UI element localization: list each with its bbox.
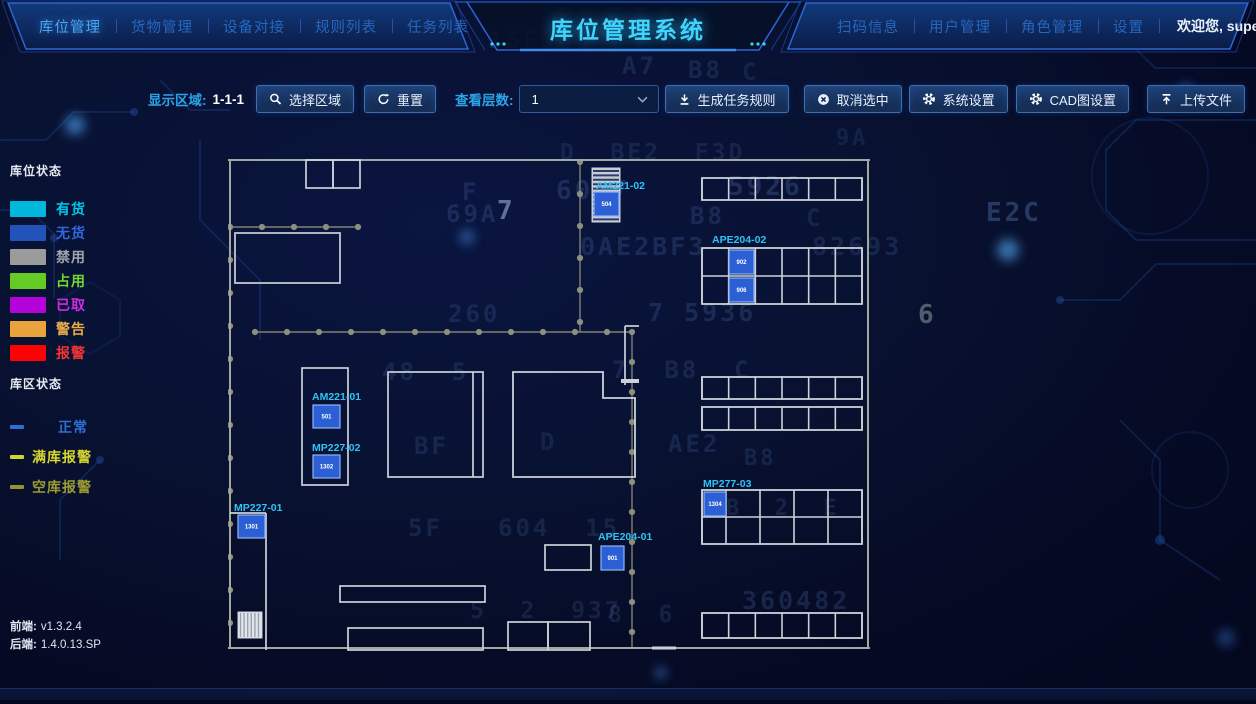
- floor-structure: [340, 586, 485, 602]
- legend-label: 正常: [58, 417, 88, 437]
- column-dot: [629, 479, 635, 485]
- refresh-icon: [377, 93, 390, 106]
- legend-slot-item-6: 报警: [10, 345, 140, 361]
- system-settings-label: 系统设置: [943, 90, 995, 109]
- legend-label: 占用: [56, 271, 86, 291]
- frontend-version-label: 前端:: [10, 621, 37, 633]
- column-dot: [629, 359, 635, 365]
- column-dot: [291, 224, 297, 230]
- reset-button[interactable]: 重置: [364, 85, 436, 113]
- floor-structure: [545, 545, 591, 570]
- page-title: 库位管理系统: [460, 11, 796, 45]
- column-dot: [444, 329, 450, 335]
- generate-task-rule-button[interactable]: 生成任务规则: [665, 85, 789, 113]
- column-dot: [629, 329, 635, 335]
- slot-cell-1301[interactable]: 1301: [238, 515, 265, 538]
- top-bar: 库位管理货物管理设备对接规则列表任务列表 库位管理系统 扫码信息用户管理角色管理…: [0, 0, 1256, 56]
- rack-grid-2[interactable]: [702, 377, 862, 399]
- cad-settings-button[interactable]: CAD图设置: [1016, 85, 1129, 113]
- display-area-label: 显示区域:: [148, 89, 207, 109]
- background-glyph: C: [742, 58, 759, 86]
- glow-dot: [654, 666, 668, 680]
- reset-label: 重置: [397, 90, 423, 109]
- svg-text:504: 504: [601, 202, 612, 208]
- column-dot: [508, 329, 514, 335]
- nav-right-item-2[interactable]: 角色管理: [1006, 16, 1098, 37]
- svg-text:501: 501: [321, 415, 332, 421]
- slot-cell-906[interactable]: 906: [729, 278, 754, 302]
- slot-cell-501[interactable]: 501: [313, 405, 340, 428]
- legend-label: 空库报警: [32, 477, 92, 497]
- svg-text:1301: 1301: [245, 525, 259, 531]
- area-label: AM221-01: [312, 391, 361, 403]
- upload-file-button[interactable]: 上传文件: [1147, 85, 1245, 113]
- legend-label: 无货: [56, 223, 86, 243]
- legend-label: 已取: [56, 295, 86, 315]
- main-nav-right: 扫码信息用户管理角色管理设置: [822, 0, 1159, 52]
- rack-grid-1[interactable]: [702, 248, 862, 304]
- slot-cell-504[interactable]: 504: [594, 192, 619, 216]
- glow-dot: [995, 237, 1021, 263]
- rack-grid-3[interactable]: [702, 407, 862, 430]
- legend-label: 禁用: [56, 247, 86, 267]
- floor-structure: [508, 622, 548, 650]
- backend-version-label: 后端:: [10, 639, 37, 651]
- frontend-version: 前端:v1.3.2.4: [10, 618, 101, 636]
- column-dot: [577, 255, 583, 261]
- column-dot: [629, 389, 635, 395]
- system-settings-button[interactable]: 系统设置: [909, 85, 1008, 113]
- floor-structure: [388, 372, 483, 477]
- column-dot: [540, 329, 546, 335]
- slot-status-title: 库位状态: [10, 162, 140, 179]
- toolbar: 显示区域: 1-1-1 选择区域 重置 查看层数: 1: [148, 85, 1245, 113]
- download-icon: [678, 93, 691, 106]
- legend-slot-item-2: 禁用: [10, 249, 140, 265]
- gear-icon: [1029, 92, 1043, 106]
- generate-task-rule-label: 生成任务规则: [698, 90, 776, 109]
- slot-status-legend: 有货无货禁用占用已取警告报警: [10, 201, 140, 361]
- area-label: AM221-02: [596, 180, 645, 192]
- user-menu[interactable]: 欢迎您, super ▼: [1159, 16, 1256, 36]
- column-dot: [629, 569, 635, 575]
- column-dot: [577, 223, 583, 229]
- floor-structure: [333, 160, 360, 188]
- column-dot: [323, 224, 329, 230]
- legend-color-swatch: [10, 297, 46, 313]
- cancel-selection-button[interactable]: 取消选中: [804, 85, 902, 113]
- cad-floor-plan-container[interactable]: 504902906501130213019011304AM221-02APE20…: [228, 156, 872, 654]
- area-label: APE204-02: [712, 234, 766, 246]
- svg-text:906: 906: [736, 288, 747, 294]
- zone-status-legend: 正常满库报警空库报警: [10, 418, 140, 496]
- column-dot: [355, 224, 361, 230]
- upload-icon: [1160, 93, 1173, 106]
- area-label: MP227-01: [234, 502, 283, 514]
- svg-text:1304: 1304: [708, 502, 722, 508]
- nav-left-item-0[interactable]: 库位管理: [24, 16, 116, 37]
- legend-panel: 库位状态 有货无货禁用占用已取警告报警 库区状态 正常满库报警空库报警: [10, 162, 140, 508]
- legend-label: 满库报警: [32, 447, 92, 467]
- floor-structure: [348, 628, 483, 650]
- svg-text:902: 902: [736, 260, 747, 266]
- main-nav-right-panel: 扫码信息用户管理角色管理设置 欢迎您, super ▼: [806, 0, 1256, 52]
- cancel-selection-label: 取消选中: [837, 90, 889, 109]
- slot-cell-901[interactable]: 901: [601, 546, 624, 570]
- layers-label: 查看层数:: [455, 89, 514, 109]
- main-nav-left: 库位管理货物管理设备对接规则列表任务列表: [24, 0, 484, 52]
- legend-zone-item-2: 空库报警: [10, 478, 140, 496]
- select-area-button[interactable]: 选择区域: [256, 85, 354, 113]
- nav-right-item-3[interactable]: 设置: [1098, 16, 1159, 37]
- legend-label: 有货: [56, 199, 86, 219]
- floor-structure: [513, 372, 635, 477]
- version-info: 前端:v1.3.2.4 后端:1.4.0.13.SP: [10, 618, 101, 654]
- column-dot: [577, 191, 583, 197]
- app-root: 15F3604A7B8C9AD BE2 F3DF6047592669A7B8CE…: [0, 0, 1256, 699]
- background-glyph: 9A: [836, 126, 869, 151]
- column-dot: [577, 287, 583, 293]
- column-dot: [604, 329, 610, 335]
- floor-structure: [548, 622, 590, 650]
- column-dot: [380, 329, 386, 335]
- legend-slot-item-5: 警告: [10, 321, 140, 337]
- backend-version: 后端:1.4.0.13.SP: [10, 636, 101, 654]
- nav-right-item-0[interactable]: 扫码信息: [822, 16, 914, 37]
- legend-color-swatch: [10, 225, 46, 241]
- background-glyph: B8: [688, 56, 723, 84]
- legend-slot-item-3: 占用: [10, 273, 140, 289]
- nav-right-item-1[interactable]: 用户管理: [914, 16, 1006, 37]
- chevron-down-icon: [637, 96, 648, 103]
- select-area-label: 选择区域: [289, 90, 341, 109]
- legend-color-swatch: [10, 321, 46, 337]
- frontend-version-value: v1.3.2.4: [41, 621, 82, 633]
- legend-slot-item-0: 有货: [10, 201, 140, 217]
- nav-left-item-1[interactable]: 货物管理: [116, 16, 208, 37]
- column-dot: [348, 329, 354, 335]
- floor-structure: [306, 160, 333, 188]
- legend-line-swatch: [10, 455, 24, 459]
- legend-label: 警告: [56, 319, 86, 339]
- slot-cell-1304[interactable]: 1304: [704, 492, 726, 516]
- gear-icon: [922, 92, 936, 106]
- layers-value: 1: [532, 92, 539, 107]
- slot-cell-902[interactable]: 902: [729, 250, 754, 274]
- svg-text:1302: 1302: [320, 465, 334, 471]
- display-area-value: 1-1-1: [213, 92, 245, 107]
- nav-left-item-2[interactable]: 设备对接: [208, 16, 300, 37]
- column-dot: [629, 629, 635, 635]
- glow-dot: [1216, 628, 1236, 648]
- glow-dot: [63, 113, 87, 137]
- cad-floor-plan: 504902906501130213019011304AM221-02APE20…: [228, 156, 872, 654]
- area-label: MP227-02: [312, 442, 361, 454]
- rack-grid-5[interactable]: [702, 613, 862, 638]
- legend-color-swatch: [10, 273, 46, 289]
- search-icon: [269, 92, 282, 106]
- legend-zone-item-1: 满库报警: [10, 448, 140, 466]
- background-glyph: 6: [918, 300, 937, 330]
- column-dot: [572, 329, 578, 335]
- column-dot: [284, 329, 290, 335]
- legend-color-swatch: [10, 201, 46, 217]
- upload-file-label: 上传文件: [1180, 90, 1232, 109]
- column-dot: [252, 329, 258, 335]
- cancel-circle-icon: [817, 93, 830, 106]
- column-dot: [629, 599, 635, 605]
- floor-structure: [235, 233, 340, 283]
- user-welcome-label: 欢迎您, super: [1177, 16, 1256, 36]
- background-glyph: E2C: [986, 198, 1042, 228]
- svg-text:901: 901: [607, 556, 618, 562]
- legend-color-swatch: [10, 249, 46, 265]
- slot-cell-1302[interactable]: 1302: [313, 455, 340, 478]
- legend-label: 报警: [56, 343, 86, 363]
- layers-select[interactable]: 1: [519, 85, 659, 113]
- column-dot: [259, 224, 265, 230]
- legend-zone-item-0: 正常: [10, 418, 140, 436]
- column-dot: [412, 329, 418, 335]
- legend-slot-item-4: 已取: [10, 297, 140, 313]
- column-dot: [629, 509, 635, 515]
- nav-left-item-3[interactable]: 规则列表: [300, 16, 392, 37]
- backend-version-value: 1.4.0.13.SP: [41, 639, 101, 651]
- rack-grid-0[interactable]: [702, 178, 862, 200]
- legend-color-swatch: [10, 345, 46, 361]
- footer-strip: [0, 688, 1256, 700]
- column-dot: [476, 329, 482, 335]
- column-dot: [577, 319, 583, 325]
- legend-line-swatch: [10, 485, 24, 489]
- background-glyph: A7: [622, 52, 657, 80]
- area-label: APE204-01: [598, 531, 652, 543]
- zone-status-title: 库区状态: [10, 375, 140, 392]
- column-dot: [316, 329, 322, 335]
- cad-settings-label: CAD图设置: [1050, 90, 1116, 109]
- legend-slot-item-1: 无货: [10, 225, 140, 241]
- legend-line-swatch: [10, 425, 24, 429]
- area-label: MP277-03: [703, 478, 752, 490]
